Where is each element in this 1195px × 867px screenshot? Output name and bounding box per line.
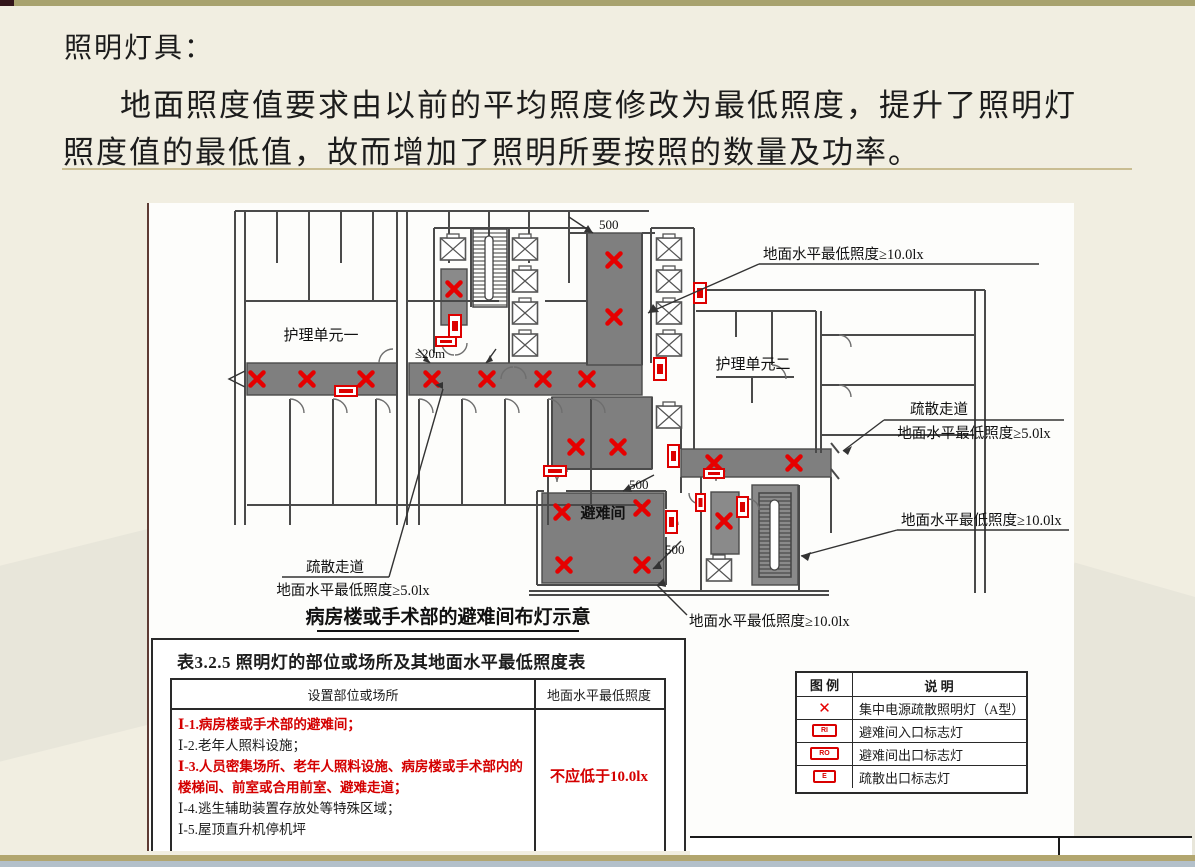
label-corridor-right-title: 疏散走道	[910, 401, 968, 418]
next-figure-edge	[690, 836, 1192, 857]
legend-label: 避难间出口标志灯	[859, 745, 1021, 764]
legend-label: 避难间入口标志灯	[859, 722, 1021, 741]
label-corridor-right-value: 地面水平最低照度≥5.0lx	[897, 425, 1051, 442]
legend-header-symbol: 图 例	[797, 673, 853, 696]
evacuation-exit-sign-icon: E	[813, 770, 836, 783]
label-corridor-left-value: 地面水平最低照度≥5.0lx	[276, 582, 430, 599]
table-row: Ⅰ-2.老年人照料设施；	[178, 735, 528, 756]
dim-500-refuge: 500	[629, 477, 649, 492]
dim-500-top: 500	[599, 217, 619, 232]
divider-line	[62, 168, 1132, 170]
corridors	[247, 233, 831, 585]
presentation-slide: 照明灯具： 地面照度值要求由以前的平均照度修改为最低照度，提升了照明灯 照度值的…	[0, 0, 1195, 867]
legend-label: 集中电源疏散照明灯（A型）	[859, 699, 1021, 718]
top-bar-accent	[0, 0, 14, 6]
dim-20m: ≤20m	[415, 346, 445, 361]
refuge-entrance-sign-icon: RI	[812, 724, 837, 737]
label-refuge-room: 避难间	[580, 504, 625, 522]
illuminance-table: 设置部位或场所 地面水平最低照度 Ⅰ-1.病房楼或手术部的避难间； Ⅰ-2.老年…	[170, 678, 666, 851]
table-header-location: 设置部位或场所	[172, 685, 534, 704]
illuminance-table-section: 表3.2.5 照明灯的部位或场所及其地面水平最低照度表 设置部位或场所 地面水平…	[151, 638, 686, 851]
table-header-illuminance: 地面水平最低照度	[536, 685, 662, 704]
figure-area: 护理单元一 护理单元二 避难间 ≤20m 500 500 500 地面水平最低照…	[147, 203, 1074, 851]
label-nursing-unit-2: 护理单元二	[715, 356, 790, 373]
label-illuminance-mid: 地面水平最低照度≥10.0lx	[901, 512, 1062, 529]
dim-500-right: 500	[665, 542, 685, 557]
label-illuminance-top: 地面水平最低照度≥10.0lx	[763, 246, 924, 263]
bottom-bar	[0, 861, 1195, 867]
legend-header-description: 说 明	[853, 676, 1025, 695]
table-body: Ⅰ-1.病房楼或手术部的避难间； Ⅰ-2.老年人照料设施； Ⅰ-3.人员密集场所…	[178, 714, 528, 840]
slide-title: 照明灯具：	[64, 26, 214, 66]
top-bar	[0, 0, 1195, 6]
table-header-row: 设置部位或场所 地面水平最低照度	[172, 680, 664, 710]
table-row: Ⅰ-5.屋顶直升机停机坪	[178, 819, 528, 840]
legend-row: E 疏散出口标志灯	[797, 765, 1026, 789]
legend-label: 疏散出口标志灯	[859, 768, 1021, 787]
label-corridor-left-title: 疏散走道	[306, 559, 364, 576]
legend-box: 图 例 说 明 ✕ 集中电源疏散照明灯（A型） RI 避难间入口标志灯 RO 避…	[795, 671, 1028, 794]
table-title: 表3.2.5 照明灯的部位或场所及其地面水平最低照度表	[177, 648, 586, 673]
refuge-exit-sign-icon: RO	[810, 747, 839, 760]
body-text-line-1: 地面照度值要求由以前的平均照度修改为最低照度，提升了照明灯	[120, 80, 1077, 125]
legend-row: RO 避难间出口标志灯	[797, 742, 1026, 766]
table-row: Ⅰ-1.病房楼或手术部的避难间；	[178, 714, 528, 735]
table-row: Ⅰ-3.人员密集场所、老年人照料设施、病房楼或手术部内的楼梯间、前室或合用前室、…	[178, 756, 528, 798]
label-illuminance-bottom: 地面水平最低照度≥10.0lx	[689, 613, 850, 630]
body-text-line-2: 照度值的最低值，故而增加了照明所要按照的数量及功率。	[63, 127, 921, 172]
label-nursing-unit-1: 护理单元一	[283, 327, 358, 344]
table-row: Ⅰ-4.逃生辅助装置存放处等特殊区域；	[178, 798, 528, 819]
plan-caption: 病房楼或手术部的避难间布灯示意	[305, 605, 590, 628]
legend-header-row: 图 例 说 明	[797, 673, 1026, 697]
legend-row: RI 避难间入口标志灯	[797, 719, 1026, 743]
legend-row: ✕ 集中电源疏散照明灯（A型）	[797, 696, 1026, 720]
emergency-light-icon: ✕	[818, 699, 831, 717]
requirement-value: 不应低于10.0lx	[536, 765, 662, 786]
